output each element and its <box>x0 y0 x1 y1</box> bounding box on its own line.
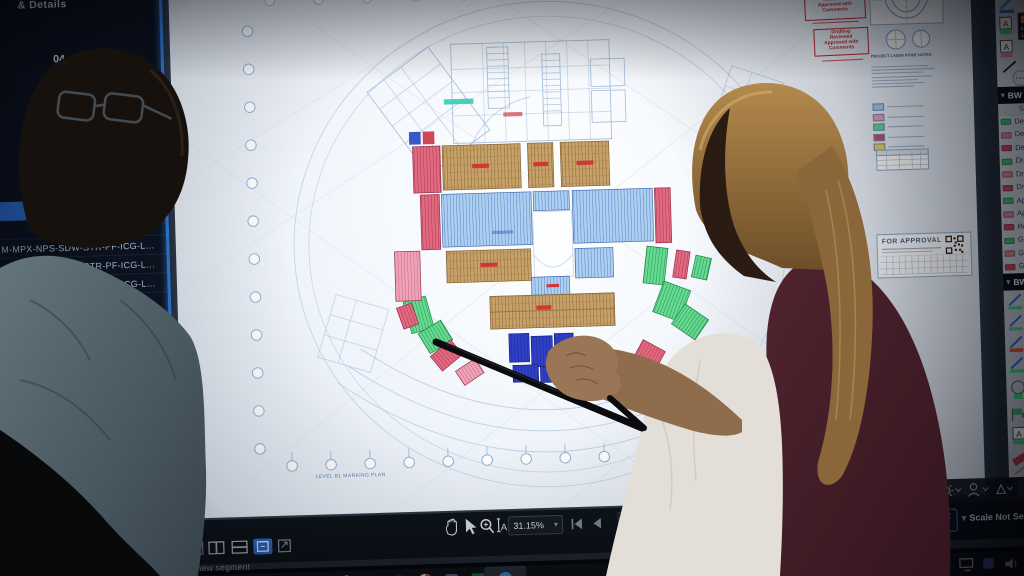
photo-stage: & Details 04 W-STR-PF-ICG… * NPS-SDW-STR… <box>0 0 1024 576</box>
people-overlay <box>0 0 1024 576</box>
man-head <box>19 48 189 247</box>
man-silhouette <box>0 48 206 576</box>
woman-silhouette <box>436 83 950 576</box>
